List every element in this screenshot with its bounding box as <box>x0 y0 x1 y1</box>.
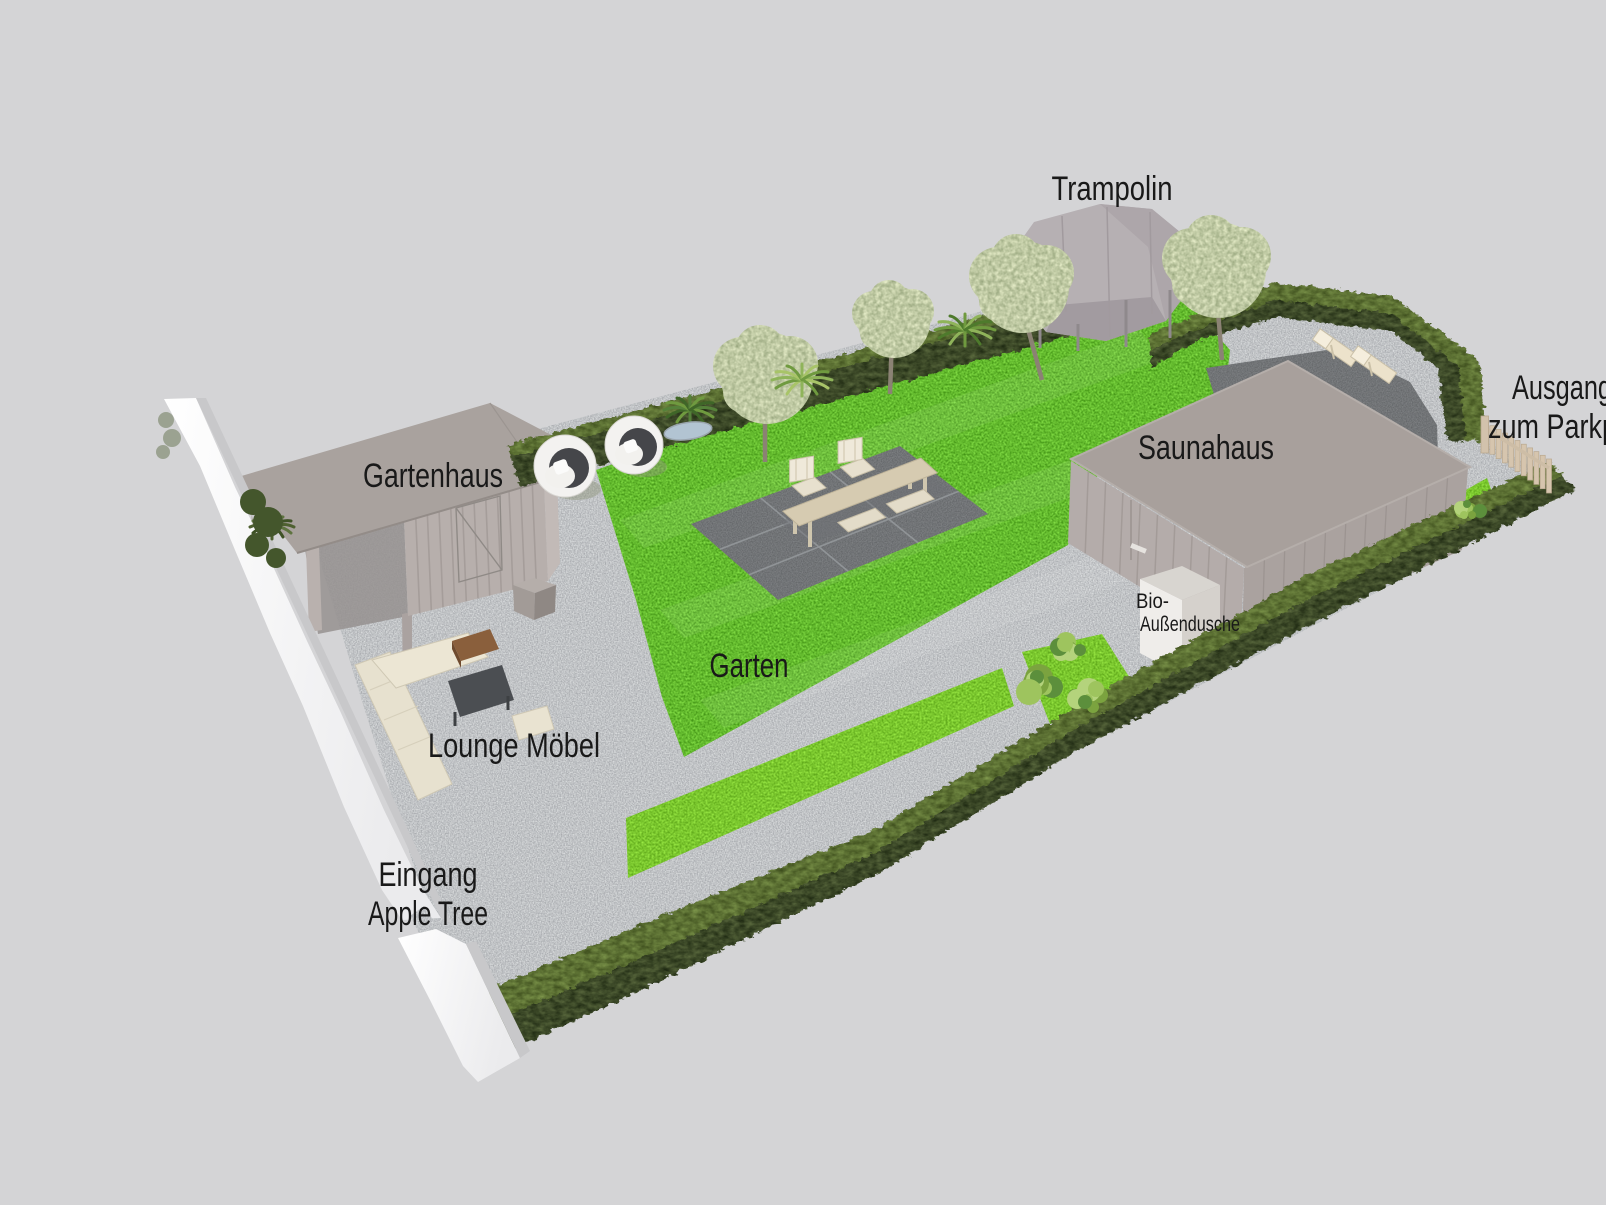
svg-text:Eingang: Eingang <box>379 856 478 894</box>
svg-text:Saunahaus: Saunahaus <box>1138 429 1274 467</box>
svg-text:Ausgang: Ausgang <box>1512 369 1606 407</box>
svg-text:Gartenhaus: Gartenhaus <box>363 457 503 495</box>
svg-text:Garten: Garten <box>710 647 789 685</box>
svg-text:Lounge Möbel: Lounge Möbel <box>428 727 600 765</box>
svg-text:zum Parkplatz: zum Parkplatz <box>1488 408 1606 446</box>
svg-text:Apple Tree: Apple Tree <box>368 895 488 933</box>
svg-text:Bio-: Bio- <box>1136 590 1169 613</box>
svg-text:Außendusche: Außendusche <box>1140 613 1240 636</box>
svg-text:Trampolin: Trampolin <box>1052 170 1173 208</box>
